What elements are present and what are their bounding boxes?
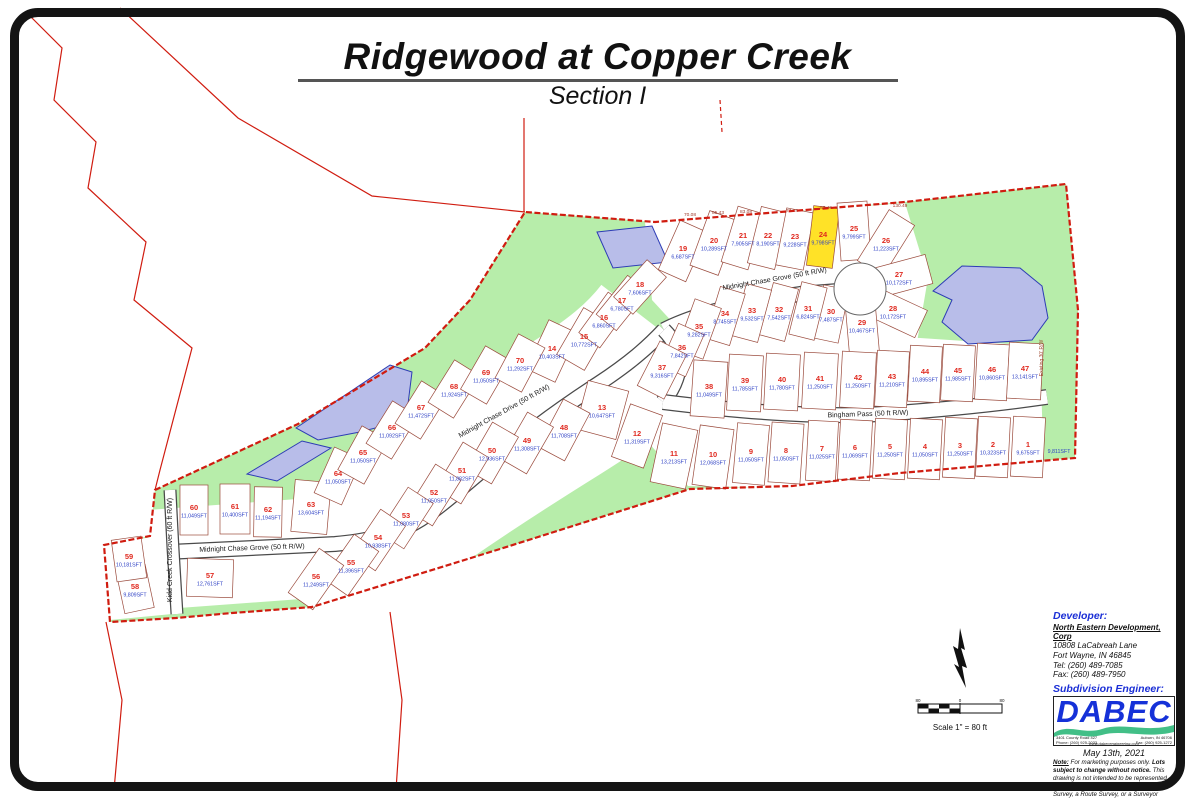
lot-17-area: 6,780SFT bbox=[610, 307, 634, 313]
lot-24-area: 9,798SFT bbox=[811, 241, 835, 247]
lot-14-area: 10,403SFT bbox=[539, 355, 566, 361]
lot-45-area: 11,985SFT bbox=[945, 377, 972, 383]
lot-1-area: 9,675SFT bbox=[1016, 451, 1040, 457]
lot-9-area: 11,050SFT bbox=[738, 458, 765, 464]
lot-47-area: 13,141SFT bbox=[1012, 375, 1039, 381]
lot-10-area: 12,068SFT bbox=[700, 461, 727, 467]
lot-28-number: 28 bbox=[889, 304, 897, 313]
lot-61-number: 61 bbox=[231, 502, 239, 511]
engineer-website: www.dabecengineering.com bbox=[1054, 741, 1174, 746]
lot-38-number: 38 bbox=[705, 382, 713, 391]
lot-44-number: 44 bbox=[921, 367, 930, 376]
lot-46-number: 46 bbox=[988, 365, 996, 374]
lot-53-number: 53 bbox=[402, 511, 410, 520]
lot-19-number: 19 bbox=[679, 244, 687, 253]
lot-20-number: 20 bbox=[710, 236, 718, 245]
lot-29-area: 10,467SFT bbox=[849, 329, 876, 335]
scale-block: 80 0 80 Scale 1" = 80 ft bbox=[900, 626, 1020, 732]
lot-50-number: 50 bbox=[488, 446, 496, 455]
lot-60-number: 60 bbox=[190, 503, 198, 512]
lot-2-area: 10,323SFT bbox=[980, 451, 1007, 457]
developer-address1: 10808 LaCabreah Lane bbox=[1053, 641, 1175, 651]
lot-62-area: 11,194SFT bbox=[255, 516, 282, 522]
lot-31-number: 31 bbox=[804, 304, 812, 313]
lot-15-number: 15 bbox=[580, 332, 588, 341]
page-subtitle: Section I bbox=[0, 82, 1195, 111]
lot-33-number: 33 bbox=[748, 306, 756, 315]
lot-23-area: 9,228SFT bbox=[783, 243, 807, 249]
lot-49-area: 11,308SFT bbox=[514, 447, 541, 453]
lot-43-area: 11,210SFT bbox=[879, 383, 906, 389]
lot-44-area: 10,895SFT bbox=[912, 378, 939, 384]
lot-40-number: 40 bbox=[778, 375, 786, 384]
lot-8-number: 8 bbox=[784, 446, 788, 455]
lot-24-number: 24 bbox=[819, 230, 828, 239]
developer-tel: Tel: (260) 489-7085 bbox=[1053, 661, 1175, 671]
lot-42-number: 42 bbox=[854, 373, 862, 382]
lot-39-number: 39 bbox=[741, 376, 749, 385]
lot-26-area: 11,223SFT bbox=[873, 247, 900, 253]
lot-28-area: 10,172SFT bbox=[880, 315, 907, 321]
lot-22-number: 22 bbox=[764, 231, 772, 240]
lot-5-area: 11,250SFT bbox=[877, 453, 904, 459]
lot-25-area: 9,799SFT bbox=[842, 235, 866, 241]
lot-59-number: 59 bbox=[125, 552, 133, 561]
lot-27-area: 10,172SFT bbox=[886, 281, 913, 287]
lot-7-area: 11,025SFT bbox=[809, 455, 836, 461]
lot-69-number: 69 bbox=[482, 368, 490, 377]
lot-56-area: 11,249SFT bbox=[303, 583, 330, 589]
lot-8-area: 11,050SFT bbox=[773, 457, 800, 463]
developer-address2: Fort Wayne, IN 46845 bbox=[1053, 651, 1175, 661]
scale-left-label: 80 bbox=[915, 698, 921, 703]
lot-23-number: 23 bbox=[791, 232, 799, 241]
lot-6-area: 11,069SFT bbox=[842, 454, 869, 460]
lot-51-number: 51 bbox=[458, 466, 466, 475]
lot-2-number: 2 bbox=[991, 440, 995, 449]
lot-45-number: 45 bbox=[954, 366, 962, 375]
lot-10-number: 10 bbox=[709, 450, 717, 459]
lot-36-number: 36 bbox=[678, 343, 686, 352]
lot-60-area: 11,049SFT bbox=[181, 514, 208, 520]
lot-64-number: 64 bbox=[334, 469, 343, 478]
lot-52-number: 52 bbox=[430, 488, 438, 497]
info-panel: Developer: North Eastern Development, Co… bbox=[1053, 610, 1175, 799]
scale-caption: Scale 1" = 80 ft bbox=[900, 723, 1020, 732]
note-pre: For marketing purposes only. bbox=[1071, 759, 1151, 766]
lot-9-number: 9 bbox=[749, 447, 753, 456]
lot-15-area: 10,772SFT bbox=[571, 343, 598, 349]
lot-59-area: 10,181SFT bbox=[116, 563, 143, 569]
existing-rw-label: Existing 30' R/W bbox=[1039, 339, 1045, 376]
lot-48-area: 11,708SFT bbox=[551, 434, 578, 440]
title-block: Ridgewood at Copper Creek Section I bbox=[0, 36, 1195, 111]
lot-12-number: 12 bbox=[633, 429, 641, 438]
lot-38-area: 11,049SFT bbox=[696, 393, 723, 399]
lot-69-area: 11,050SFT bbox=[473, 379, 500, 385]
lot-56-number: 56 bbox=[312, 572, 320, 581]
lot-35-area: 9,282SFT bbox=[687, 333, 711, 339]
scale-zero-label: 0 bbox=[959, 698, 962, 703]
lot-19-area: 6,687SFT bbox=[671, 255, 695, 261]
lot-54-area: 10,938SFT bbox=[365, 544, 392, 550]
lot-34-number: 34 bbox=[721, 309, 730, 318]
plat-sheet: 19,675SFT210,323SFT311,250SFT411,050SFT5… bbox=[0, 0, 1195, 799]
lot-58-area: 9,809SFT bbox=[123, 593, 147, 599]
lot-65-number: 65 bbox=[359, 448, 367, 457]
lot-26-number: 26 bbox=[882, 236, 890, 245]
north-arrow-icon bbox=[940, 626, 980, 692]
lot-37-number: 37 bbox=[658, 363, 666, 372]
scale-right-label: 80 bbox=[999, 698, 1005, 703]
lot-11-area: 13,213SFT bbox=[661, 460, 688, 466]
lot-17-number: 17 bbox=[618, 296, 626, 305]
lot-68-area: 11,924SFT bbox=[441, 393, 468, 399]
lot-57-number: 57 bbox=[206, 571, 214, 580]
lot-18-area: 7,606SFT bbox=[628, 291, 652, 297]
open-space-area-label: 9,811SFT bbox=[1048, 449, 1072, 455]
lot-36-area: 7,842SFT bbox=[670, 354, 694, 360]
lot-32-area: 7,542SFT bbox=[767, 316, 791, 322]
lot-40-area: 11,780SFT bbox=[769, 386, 796, 392]
lot-37-area: 9,316SFT bbox=[650, 374, 674, 380]
street-label: Kidd Creek Crossover (60 ft R/W) bbox=[167, 498, 174, 602]
page-title: Ridgewood at Copper Creek bbox=[0, 36, 1195, 78]
lot-64-area: 11,050SFT bbox=[325, 480, 352, 486]
lot-66-area: 11,092SFT bbox=[379, 434, 406, 440]
lot-3-area: 11,250SFT bbox=[947, 452, 974, 458]
lot-52-area: 11,050SFT bbox=[421, 499, 448, 505]
dimension-label: 70.08 bbox=[684, 212, 696, 218]
lot-34-area: 8,745SFT bbox=[713, 320, 737, 326]
lot-5-number: 5 bbox=[888, 442, 892, 451]
lot-63-number: 63 bbox=[307, 500, 315, 509]
lot-58-number: 58 bbox=[131, 582, 139, 591]
lot-63-area: 13,604SFT bbox=[298, 511, 325, 517]
lot-14-number: 14 bbox=[548, 344, 557, 353]
lot-21-area: 7,905SFT bbox=[731, 242, 755, 248]
lot-41-number: 41 bbox=[816, 374, 824, 383]
lot-22-area: 8,190SFT bbox=[756, 242, 780, 248]
lot-57-area: 12,761SFT bbox=[197, 582, 224, 588]
lot-7-number: 7 bbox=[820, 444, 824, 453]
lot-50-area: 12,936SFT bbox=[479, 457, 506, 463]
lot-51-area: 11,882SFT bbox=[449, 477, 476, 483]
lot-21-number: 21 bbox=[739, 231, 747, 240]
lot-42-area: 11,250SFT bbox=[845, 384, 872, 390]
dimension-label: 85.43 bbox=[712, 210, 724, 216]
lot-30-number: 30 bbox=[827, 307, 835, 316]
lot-32-number: 32 bbox=[775, 305, 783, 314]
lot-30-area: 7,487SFT bbox=[819, 318, 843, 324]
lot-16-area: 6,860SFT bbox=[592, 324, 616, 330]
lot-1-number: 1 bbox=[1026, 440, 1030, 449]
lot-6-number: 6 bbox=[853, 443, 857, 452]
lot-3-number: 3 bbox=[958, 441, 962, 450]
lot-11-number: 11 bbox=[670, 449, 678, 458]
note-label: Note: bbox=[1053, 759, 1069, 766]
lot-4-area: 11,050SFT bbox=[912, 453, 939, 459]
lot-70-area: 11,292SFT bbox=[507, 367, 534, 373]
developer-heading: Developer: bbox=[1053, 610, 1175, 622]
lot-54-number: 54 bbox=[374, 533, 383, 542]
lot-18-number: 18 bbox=[636, 280, 644, 289]
lot-13-number: 13 bbox=[598, 403, 606, 412]
note-block: Note: For marketing purposes only. Lots … bbox=[1053, 759, 1175, 799]
lot-31-area: 6,824SFT bbox=[796, 315, 820, 321]
lot-16-number: 16 bbox=[600, 313, 608, 322]
lot-55-number: 55 bbox=[347, 558, 355, 567]
lot-53-area: 11,080SFT bbox=[393, 522, 420, 528]
lot-68-number: 68 bbox=[450, 382, 458, 391]
engineer-heading: Subdivision Engineer: bbox=[1053, 683, 1175, 695]
scale-bar: 80 0 80 bbox=[912, 697, 1008, 717]
lot-20-area: 10,289SFT bbox=[701, 247, 728, 253]
lot-39-area: 11,785SFT bbox=[732, 387, 759, 393]
lot-55-area: 11,396SFT bbox=[338, 569, 365, 575]
lot-66-number: 66 bbox=[388, 423, 396, 432]
plat-date: May 13th, 2021 bbox=[1053, 748, 1175, 758]
lot-25-number: 25 bbox=[850, 224, 858, 233]
lot-43-number: 43 bbox=[888, 372, 896, 381]
lot-48-number: 48 bbox=[560, 423, 568, 432]
dabec-logo: DABEC 3401 County Road 427 Phone: (260) … bbox=[1053, 696, 1175, 746]
cul-de-sac bbox=[834, 263, 886, 315]
lot-46-area: 10,860SFT bbox=[979, 376, 1006, 382]
lot-49-number: 49 bbox=[523, 436, 531, 445]
lot-61-area: 10,400SFT bbox=[222, 513, 249, 519]
lot-67-area: 11,472SFT bbox=[408, 414, 435, 420]
lot-13-area: 10,647SFT bbox=[589, 414, 616, 420]
developer-name: North Eastern Development, Corp bbox=[1053, 623, 1175, 641]
lot-62-number: 62 bbox=[264, 505, 272, 514]
lot-67-number: 67 bbox=[417, 403, 425, 412]
developer-fax: Fax: (260) 489-7950 bbox=[1053, 670, 1175, 680]
lot-65-area: 11,050SFT bbox=[350, 459, 377, 465]
lot-27-number: 27 bbox=[895, 270, 903, 279]
lot-12-area: 11,319SFT bbox=[624, 440, 651, 446]
lot-33-area: 9,532SFT bbox=[740, 317, 764, 323]
lot-70-number: 70 bbox=[516, 356, 524, 365]
lot-47-number: 47 bbox=[1021, 364, 1029, 373]
lot-35-number: 35 bbox=[695, 322, 703, 331]
lot-29-number: 29 bbox=[858, 318, 866, 327]
lot-41-area: 11,250SFT bbox=[807, 385, 834, 391]
